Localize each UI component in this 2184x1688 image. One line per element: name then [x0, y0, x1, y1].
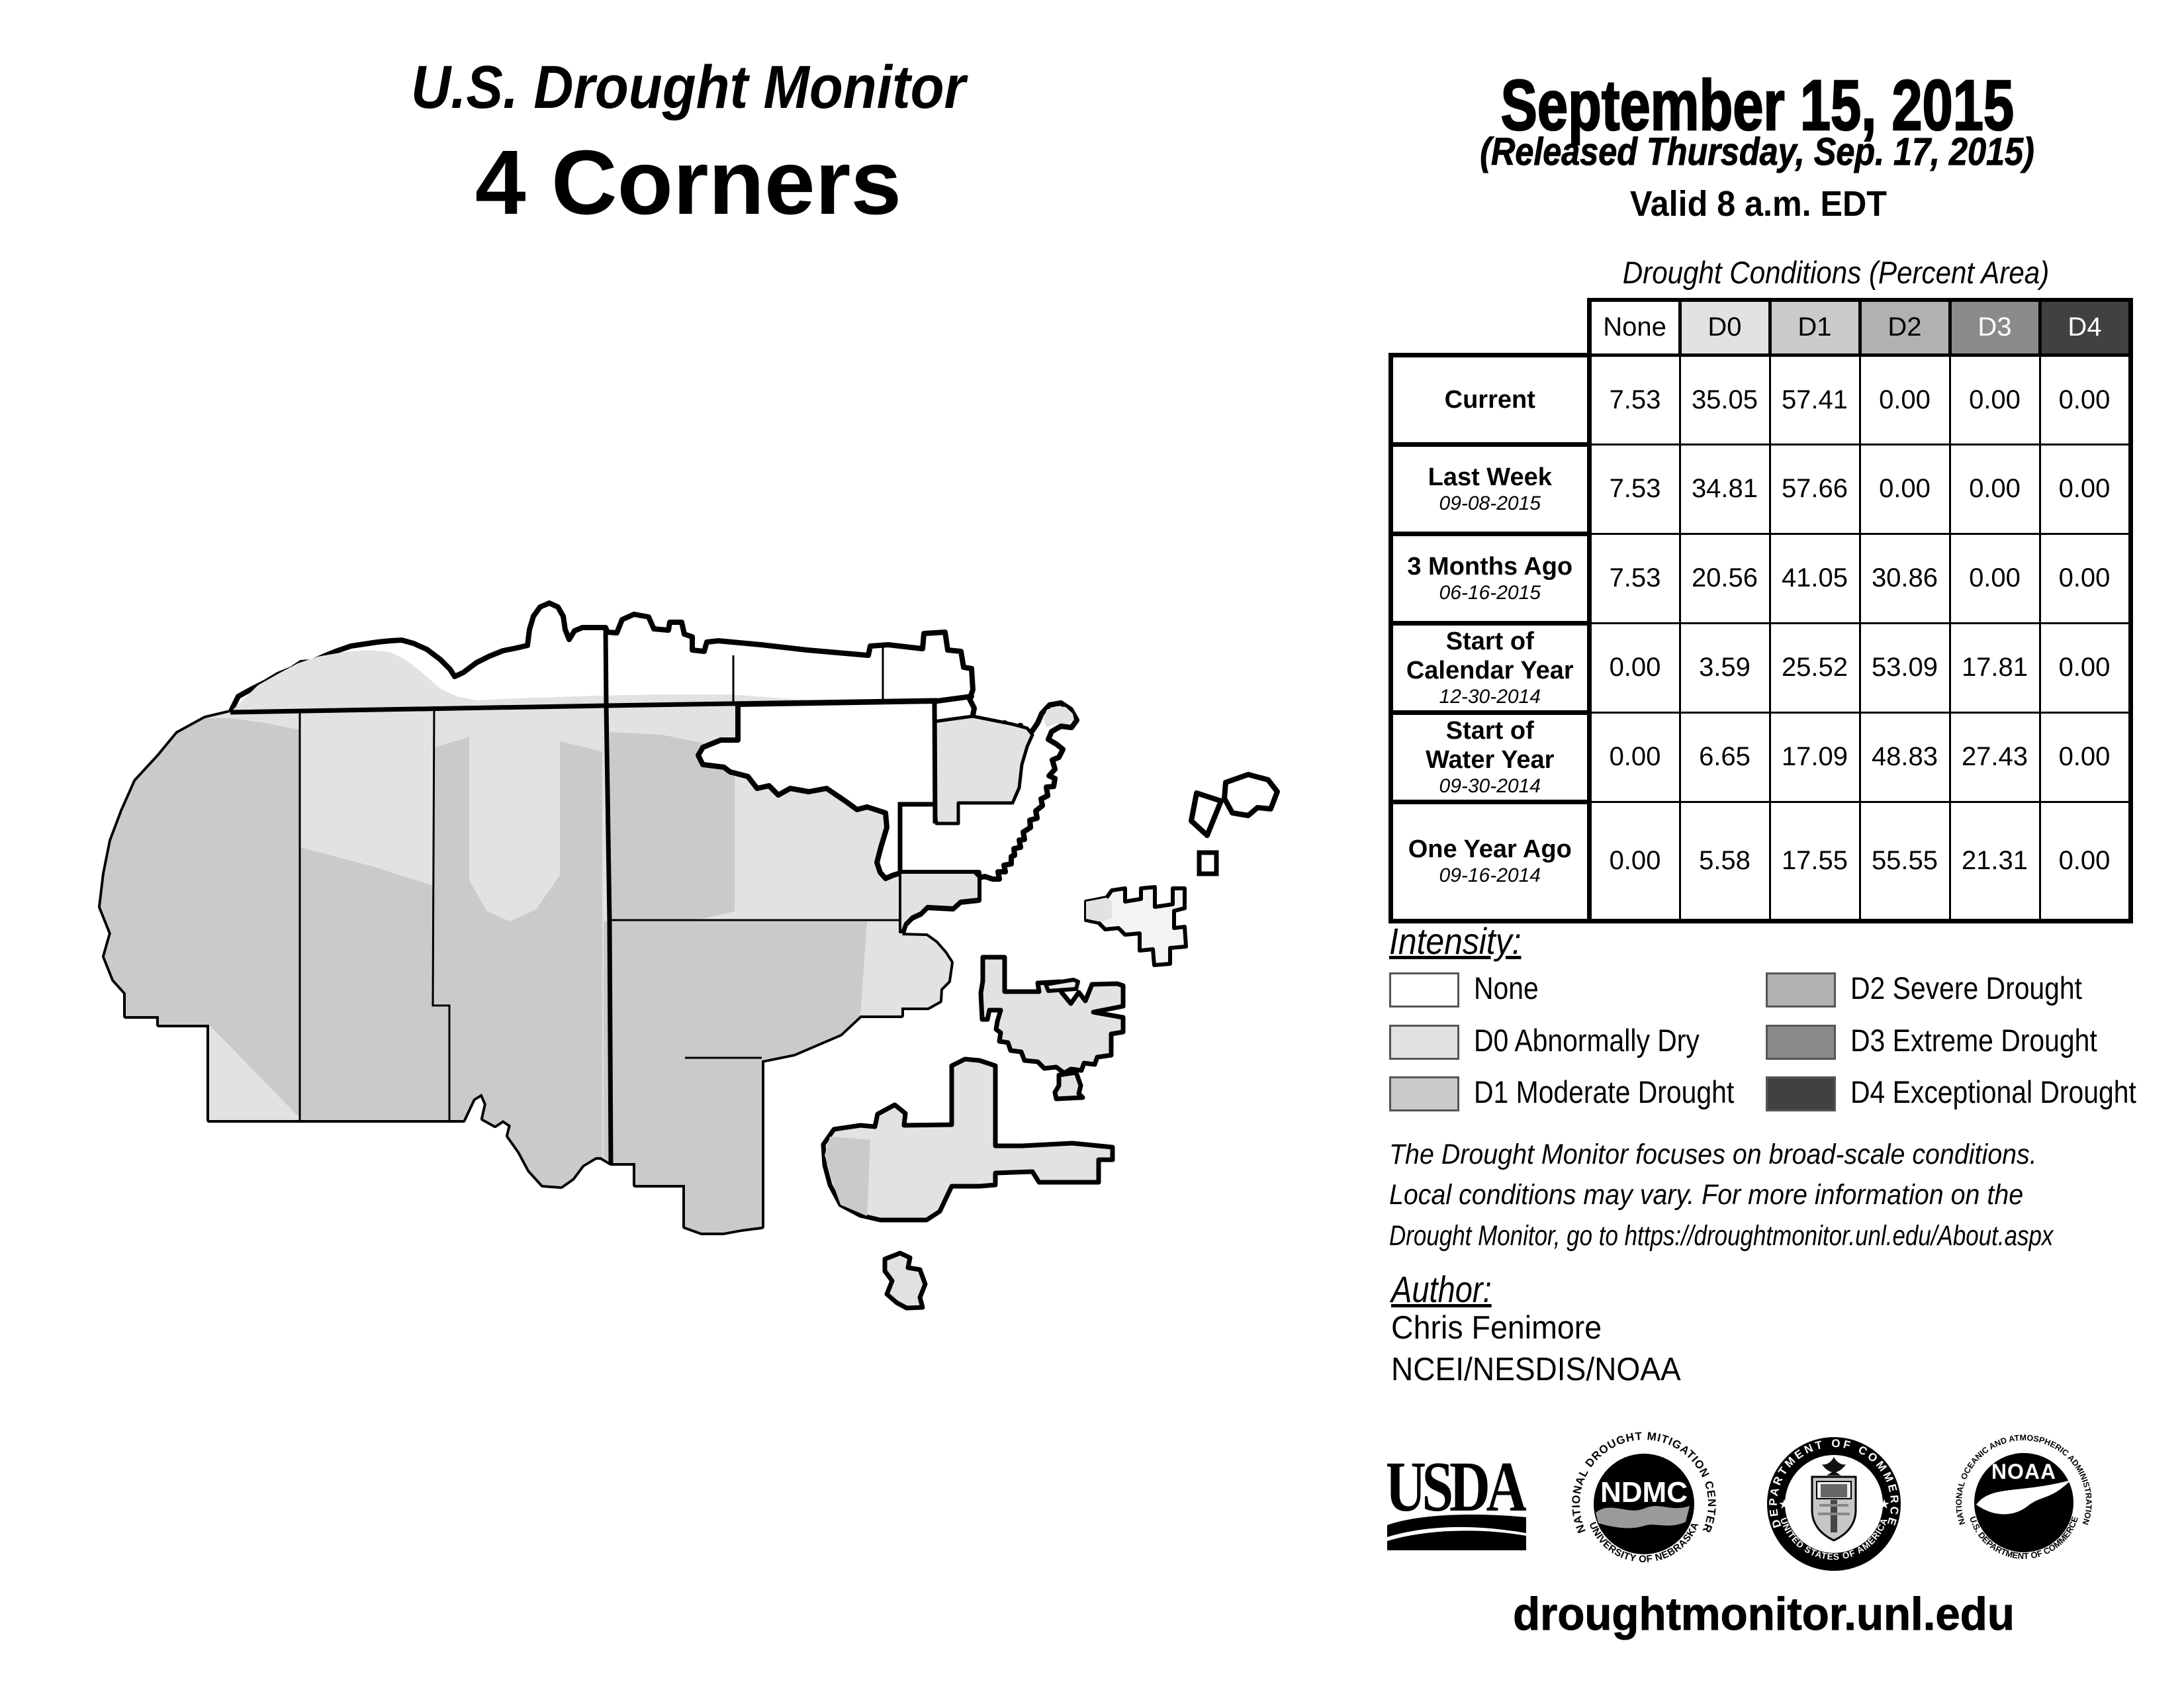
svg-text:NOAA: NOAA	[1991, 1460, 2056, 1483]
svg-text:★: ★	[1878, 1497, 1890, 1512]
svg-text:NDMC: NDMC	[1600, 1476, 1688, 1509]
svg-text:★: ★	[1778, 1497, 1790, 1512]
